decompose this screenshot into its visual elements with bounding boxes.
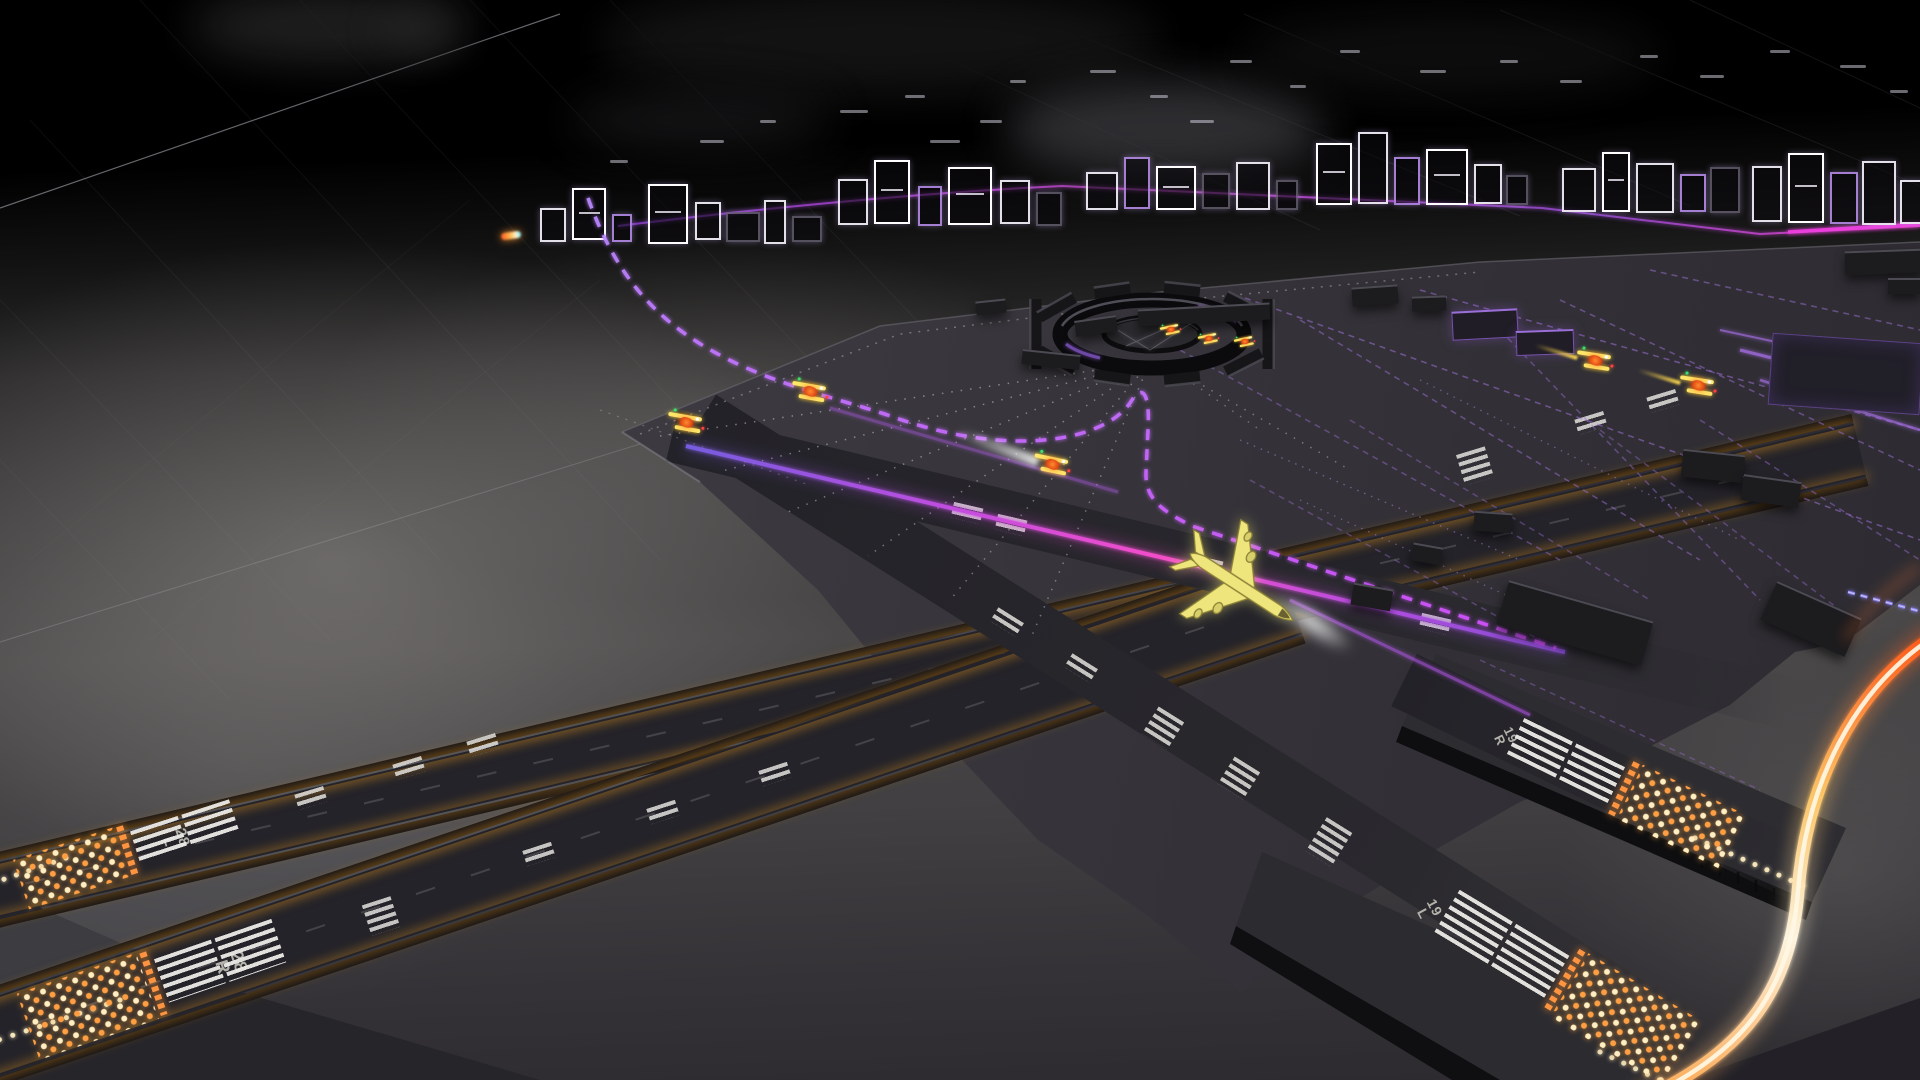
aircraft-part	[673, 408, 677, 412]
aircraft-part	[1236, 337, 1238, 339]
aircraft-part	[825, 395, 829, 399]
game-viewport[interactable]: 28 L28 R19 L19 R	[0, 0, 1920, 1080]
aircraft-part	[1067, 469, 1071, 473]
aircraft-part	[1582, 346, 1586, 350]
aircraft-part	[1162, 325, 1164, 327]
aircraft-part	[1040, 450, 1044, 454]
aircraft-part	[1610, 364, 1614, 368]
aircraft-part	[1180, 328, 1182, 330]
aircraft-apron-jet-3[interactable]	[1232, 334, 1259, 349]
aircraft-part	[797, 377, 801, 381]
aircraft-part	[1175, 325, 1176, 326]
aircraft-part	[1713, 389, 1717, 393]
aircraft-part	[1213, 334, 1214, 335]
aircraft-part	[1249, 337, 1250, 338]
aircraft-part	[1254, 340, 1256, 342]
aircraft-apron-jet-2[interactable]	[1196, 331, 1223, 346]
aircraft-apron-jet-1[interactable]	[1158, 322, 1185, 337]
aircraft-part	[1218, 337, 1220, 339]
aircraft-part	[1685, 371, 1689, 375]
aircraft-part	[701, 426, 705, 430]
glow-arc-layer	[0, 0, 1920, 1080]
aircraft-part	[1200, 334, 1202, 336]
